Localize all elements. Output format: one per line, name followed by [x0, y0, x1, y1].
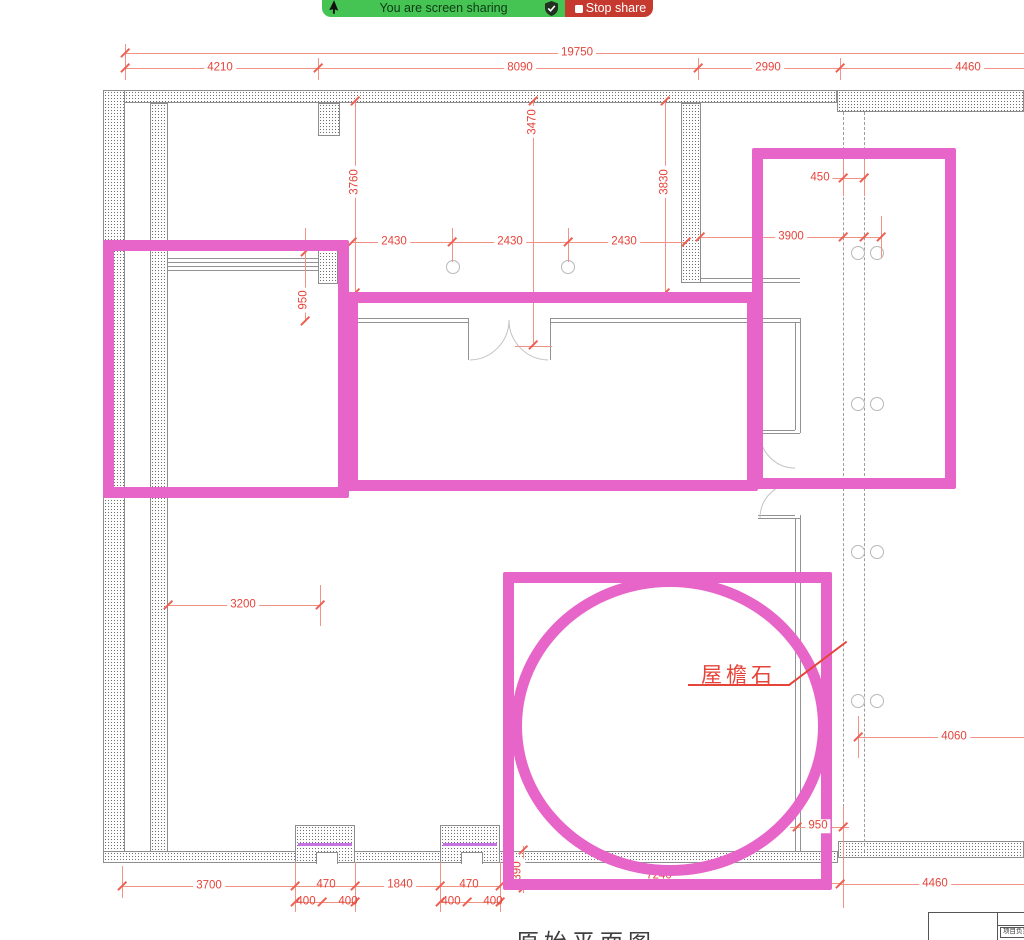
leader-line	[688, 684, 790, 686]
grid-circle	[446, 260, 460, 274]
dim-label: 400	[296, 896, 315, 908]
stop-icon	[575, 5, 583, 13]
screen: 19750 4210 8090 2990 4460 3760 3470 3830…	[0, 0, 1024, 940]
dimension-line	[122, 886, 500, 887]
annotation-circle	[511, 576, 829, 876]
shield-check-icon	[545, 1, 558, 21]
screen-sharing-label: You are screen sharing	[322, 0, 565, 16]
dim-label: 470	[316, 879, 335, 891]
dim-label: 1840	[384, 878, 416, 892]
grid-circle	[870, 545, 884, 559]
dim-label: 2430	[494, 235, 526, 249]
pier-threshold-line	[443, 843, 497, 846]
grid-circle	[851, 694, 865, 708]
dimension-line	[125, 68, 1024, 69]
dim-label: 3470	[526, 106, 540, 138]
title-block-divider	[997, 913, 998, 940]
dim-label: 4460	[952, 61, 984, 75]
grid-circle	[561, 260, 575, 274]
dim-label: 400	[441, 896, 460, 908]
drawing-caption: 原始平面图	[516, 923, 656, 940]
grid-circle	[870, 694, 884, 708]
dim-label: 2990	[752, 61, 784, 75]
extension-line	[840, 58, 841, 80]
title-block: 项目负责	[928, 912, 1024, 940]
dim-label: 400	[338, 896, 357, 908]
dim-label: 950	[805, 819, 830, 833]
dim-label: 3830	[658, 166, 672, 198]
extension-line	[568, 228, 569, 262]
grid-circle	[851, 545, 865, 559]
extension-line	[843, 806, 844, 908]
dim-label: 8090	[504, 61, 536, 75]
annotation-rect-center	[347, 292, 758, 491]
dim-label: 3700	[193, 879, 225, 893]
title-block-divider	[997, 925, 1024, 926]
stop-share-button[interactable]: Stop share	[565, 0, 653, 17]
dim-label: 4210	[204, 61, 236, 75]
pier-threshold-line	[298, 843, 352, 846]
dim-label: 2430	[608, 235, 640, 249]
annotation-rect-top-right	[752, 148, 956, 489]
dim-label: 19750	[558, 46, 596, 60]
dim-label: 400	[483, 896, 502, 908]
dim-label: 4460	[919, 877, 951, 891]
annotation-rect-left	[103, 240, 349, 498]
dim-label: 3200	[227, 598, 259, 612]
extension-line	[452, 228, 453, 262]
dim-label: 3760	[348, 166, 362, 198]
dim-label: 2430	[378, 235, 410, 249]
extension-line	[698, 58, 699, 80]
title-block-cell: 项目负责	[1000, 927, 1024, 938]
screen-sharing-banner: You are screen sharing	[322, 0, 565, 17]
dim-label: 470	[459, 879, 478, 891]
dim-label: 4060	[938, 730, 970, 744]
extension-line	[318, 58, 319, 80]
